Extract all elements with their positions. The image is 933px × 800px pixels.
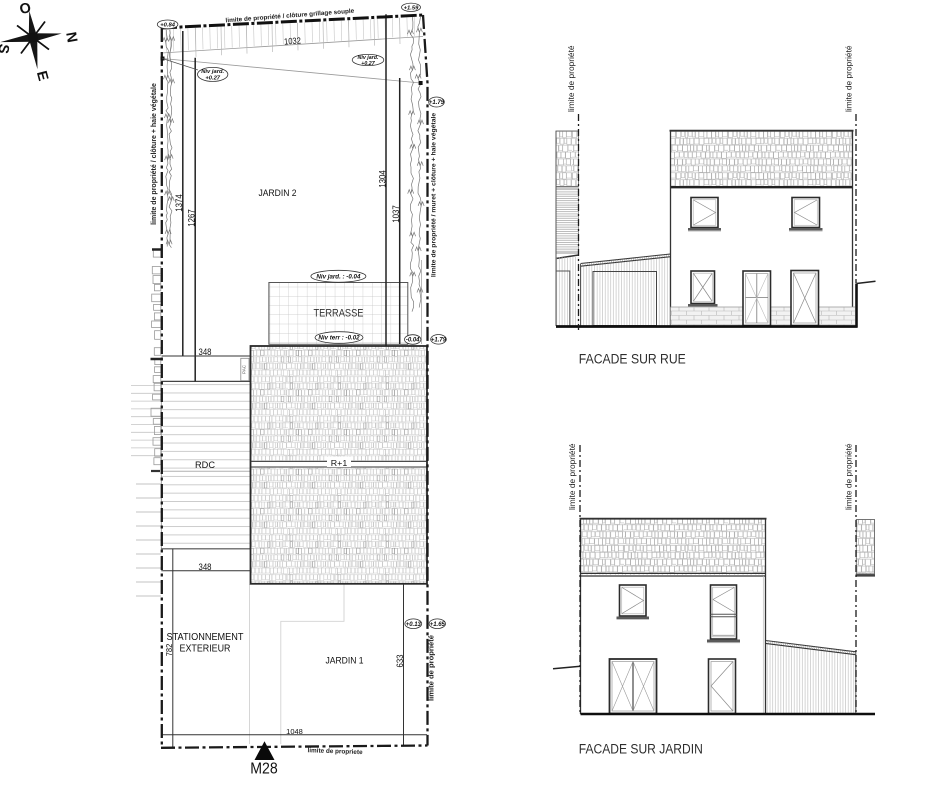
svg-text:1037: 1037 (391, 205, 401, 223)
svg-text:TERRASSE: TERRASSE (314, 307, 364, 319)
svg-text:JARDIN 2: JARDIN 2 (259, 188, 297, 198)
svg-text:1304: 1304 (377, 170, 387, 188)
svg-text:FACADE SUR JARDIN: FACADE SUR JARDIN (579, 741, 703, 756)
svg-text:633: 633 (395, 655, 405, 668)
svg-text:782: 782 (164, 644, 174, 657)
svg-text:1048: 1048 (286, 727, 303, 736)
svg-text:EXTERIEUR: EXTERIEUR (180, 644, 231, 655)
svg-text:RDC: RDC (195, 460, 215, 470)
svg-text:limite de propriété: limite de propriété (844, 443, 854, 510)
svg-text:348: 348 (199, 347, 212, 357)
svg-text:1032: 1032 (284, 35, 302, 46)
svg-text:348: 348 (199, 562, 212, 572)
svg-text:S: S (0, 43, 12, 56)
svg-text:STATIONNEMENT: STATIONNEMENT (167, 632, 244, 643)
svg-text:JARDIN 1: JARDIN 1 (326, 656, 364, 666)
svg-text:limite de propriété: limite de propriété (429, 635, 436, 701)
svg-text:Niv jard.: Niv jard. (201, 69, 224, 75)
svg-text:limite de propriété: limite de propriété (566, 45, 576, 112)
svg-text:limite de propriété / clôture: limite de propriété / clôture + haie vég… (151, 83, 158, 225)
svg-text:limite de propriété: limite de propriété (567, 443, 577, 510)
svg-text:PAC: PAC (242, 364, 247, 374)
svg-text:+1.79: +1.79 (431, 337, 447, 343)
svg-text:M28: M28 (250, 761, 278, 778)
svg-text:FACADE SUR RUE: FACADE SUR RUE (579, 352, 686, 367)
svg-text:1374: 1374 (174, 194, 184, 212)
svg-text:Niv jard. : -0.04: Niv jard. : -0.04 (316, 274, 361, 281)
svg-text:-0.04: -0.04 (406, 338, 420, 344)
svg-text:Niv terr : -0.02: Niv terr : -0.02 (318, 335, 360, 342)
svg-text:limite de propriété: limite de propriété (844, 45, 854, 112)
svg-text:R+1: R+1 (331, 458, 348, 468)
svg-text:+0.84: +0.84 (160, 22, 175, 28)
svg-text:+0.13: +0.13 (406, 622, 422, 628)
svg-text:limite de propriété / muret +: limite de propriété / muret + clôture + … (430, 113, 437, 278)
svg-text:+1.65: +1.65 (430, 622, 446, 628)
svg-text:1267: 1267 (187, 209, 197, 227)
svg-text:+0.27: +0.27 (361, 61, 375, 67)
svg-text:+1.59: +1.59 (404, 5, 419, 11)
svg-text:+1.79: +1.79 (429, 100, 445, 106)
svg-text:+0.27: +0.27 (205, 76, 220, 82)
